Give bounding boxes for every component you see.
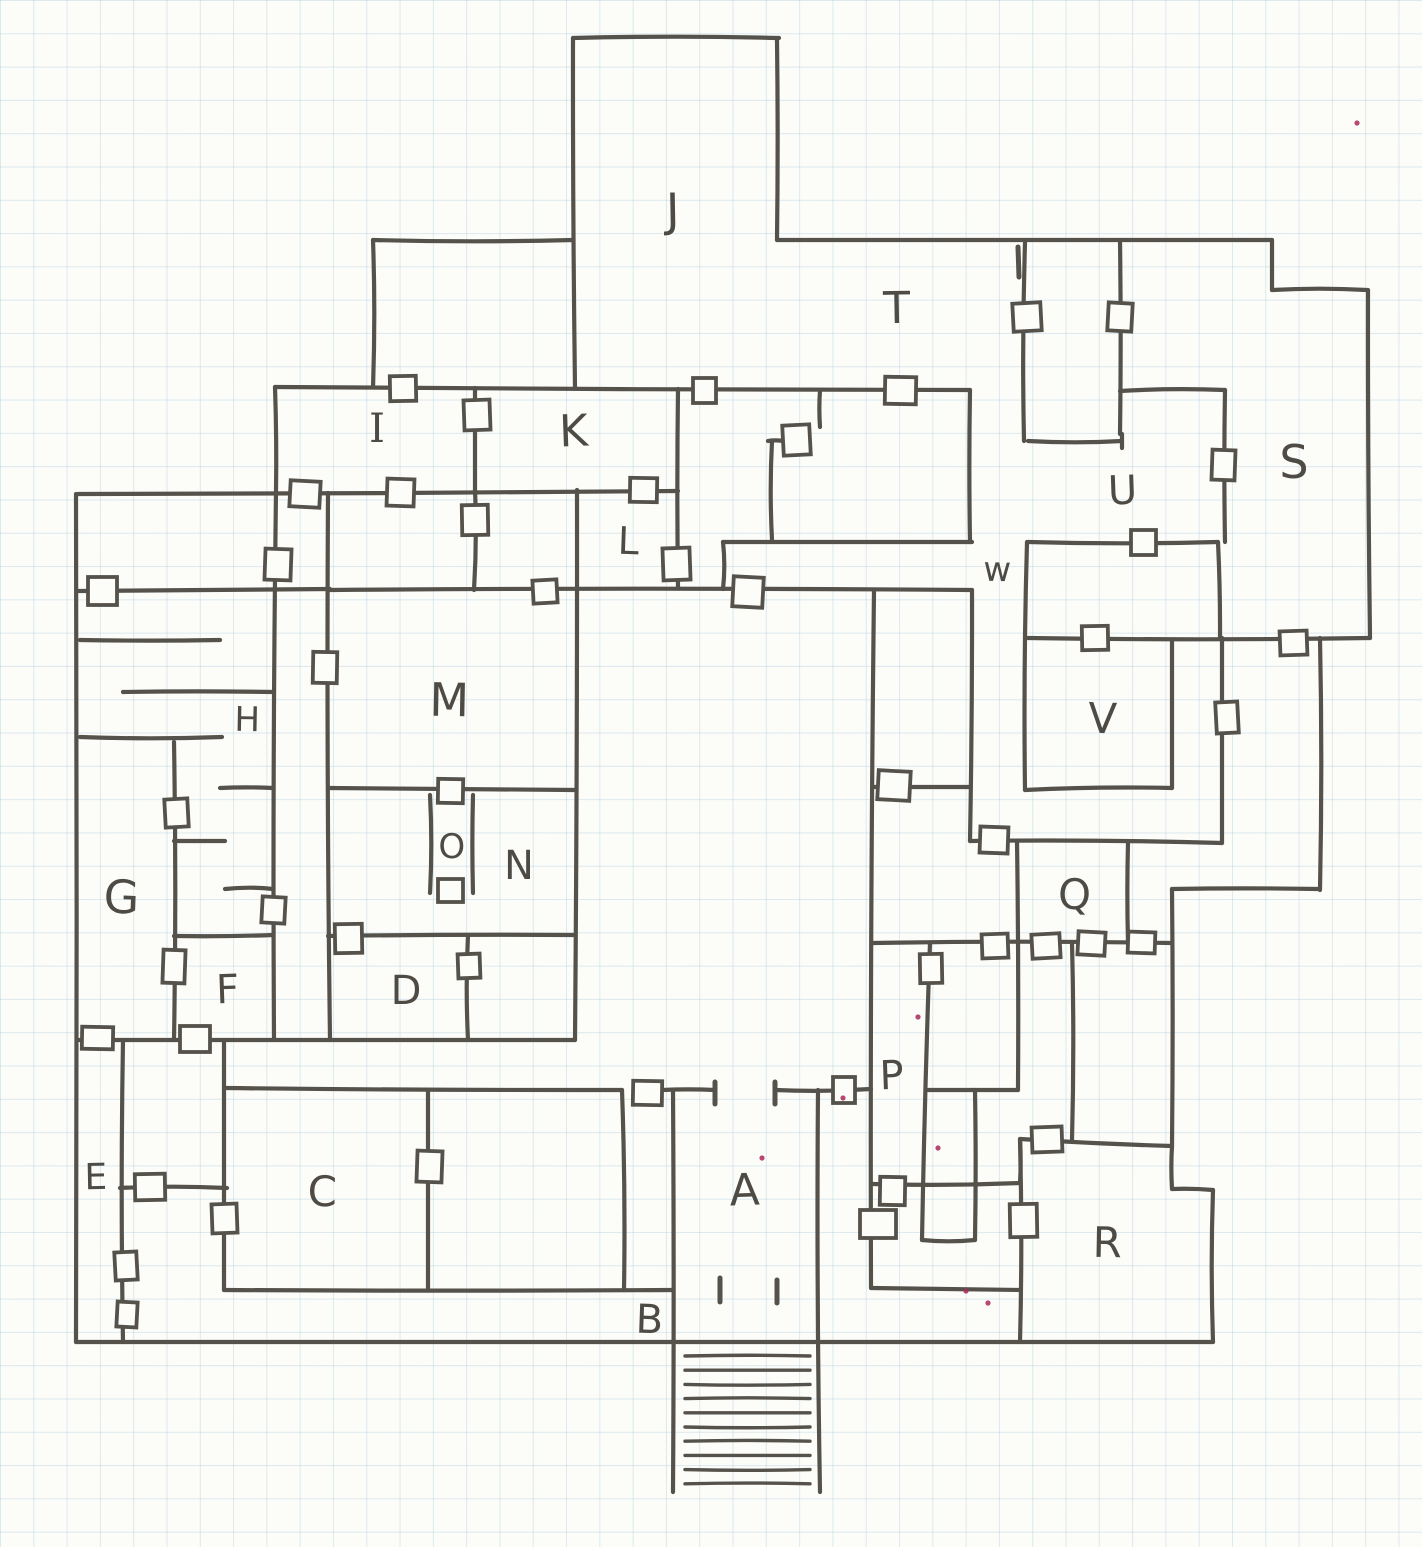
jambs-layer — [715, 247, 1019, 1303]
room-label-D: D — [391, 968, 422, 1014]
wall — [1172, 888, 1318, 889]
wall — [275, 387, 970, 390]
door-marker — [416, 1151, 442, 1183]
door-marker — [114, 1251, 137, 1280]
room-label-U: U — [1107, 468, 1138, 515]
walls-layer — [76, 37, 1370, 1492]
door-marker — [438, 779, 463, 803]
door-marker — [1077, 931, 1105, 955]
dungeon-map: ABCDEFGHIJKLMNOPQRSTUVw — [0, 0, 1422, 1547]
room-label-N: N — [504, 843, 534, 889]
wall — [970, 590, 972, 841]
wall — [430, 795, 431, 893]
door-marker — [438, 879, 463, 902]
wall — [1028, 441, 1122, 442]
wall — [224, 1290, 673, 1291]
door-marker — [1131, 530, 1156, 555]
wall — [78, 491, 678, 494]
door-marker — [1032, 1126, 1063, 1152]
wall — [1017, 841, 1018, 1090]
door-marker — [264, 549, 291, 581]
door-marker — [82, 1027, 113, 1050]
door-marker — [880, 1177, 905, 1205]
ink-speck — [1354, 120, 1359, 125]
door-marker — [782, 424, 811, 455]
door-marker — [180, 1026, 210, 1052]
door-marker — [462, 505, 489, 535]
door-marker — [732, 576, 764, 608]
wall — [1120, 389, 1225, 391]
wall — [80, 640, 220, 641]
wall — [373, 240, 573, 241]
door-marker — [877, 770, 910, 801]
wall — [1072, 943, 1073, 1140]
stair-tread — [685, 1398, 810, 1399]
wall — [122, 1040, 123, 1342]
wall — [1127, 843, 1128, 943]
stairs — [685, 1355, 810, 1484]
door-marker — [387, 479, 415, 507]
door-marker — [458, 954, 481, 979]
stair-tread — [685, 1440, 810, 1441]
door-marker — [116, 1301, 137, 1327]
wall — [1020, 1140, 1021, 1342]
wall — [1025, 788, 1172, 790]
room-label-C: C — [307, 1167, 337, 1217]
door-marker — [633, 1081, 662, 1106]
room-label-H: H — [234, 700, 260, 740]
room-label-F: F — [215, 967, 240, 1014]
door-marker — [289, 480, 320, 508]
stair-tread — [685, 1384, 810, 1385]
door-marker — [1012, 302, 1041, 331]
wall — [575, 490, 577, 1040]
door-marker — [982, 934, 1009, 959]
wall — [573, 38, 575, 388]
wall — [818, 1090, 820, 1492]
door-marker — [532, 579, 557, 603]
room-label-I: I — [369, 406, 385, 452]
stair-tread — [685, 1427, 810, 1428]
wall — [1172, 1189, 1213, 1190]
wall — [871, 1288, 1020, 1290]
ink-speck — [840, 1095, 845, 1100]
wall — [1025, 542, 1027, 790]
ink-speck — [915, 1014, 920, 1019]
wall — [1272, 289, 1367, 290]
room-label-A: A — [729, 1164, 761, 1216]
door-marker — [920, 954, 943, 983]
room-label-R: R — [1092, 1218, 1122, 1268]
door-marker — [164, 798, 188, 827]
room-label-L: L — [617, 519, 640, 564]
wall — [622, 1090, 624, 1290]
door-jamb — [1018, 247, 1019, 277]
door-marker — [390, 376, 416, 401]
ink-speck — [759, 1155, 764, 1160]
door-marker — [1031, 933, 1060, 958]
room-label-T: T — [882, 283, 911, 334]
door-marker — [135, 1174, 165, 1201]
wall — [969, 390, 970, 542]
wall — [76, 494, 77, 1342]
wall — [975, 1090, 976, 1240]
stair-tread — [685, 1355, 810, 1356]
wall — [225, 888, 273, 889]
wall — [467, 935, 468, 1040]
room-label-M: M — [429, 673, 470, 728]
wall — [771, 441, 772, 540]
wall — [1023, 243, 1025, 441]
wall — [1218, 542, 1220, 638]
door-marker — [1211, 450, 1235, 481]
room-label-B: B — [635, 1297, 664, 1344]
wall — [80, 737, 222, 738]
wall — [662, 1089, 715, 1090]
doors-layer — [82, 302, 1308, 1327]
door-marker — [980, 827, 1009, 854]
door-marker — [162, 950, 185, 984]
ink-speck — [985, 1300, 990, 1305]
room-label-G: G — [103, 869, 141, 924]
door-marker — [1128, 932, 1156, 954]
wall — [1320, 638, 1321, 890]
wall — [1172, 889, 1173, 1146]
room-label-J: J — [662, 183, 680, 237]
room-label-O: O — [438, 827, 465, 867]
wall — [174, 935, 273, 936]
graph-paper: ABCDEFGHIJKLMNOPQRSTUVw — [0, 0, 1422, 1547]
door-marker — [860, 1210, 896, 1238]
room-label-S: S — [1279, 435, 1308, 489]
door-marker — [88, 577, 117, 605]
door-marker — [693, 378, 716, 403]
wall — [220, 787, 273, 788]
wall — [819, 390, 820, 427]
door-marker — [662, 548, 690, 581]
wall — [224, 1088, 622, 1090]
door-marker — [313, 652, 338, 683]
wall — [1212, 1190, 1213, 1342]
door-marker — [335, 924, 363, 953]
ink-speck — [963, 1288, 968, 1293]
wall — [1368, 290, 1370, 638]
door-marker — [1010, 1204, 1038, 1237]
wall — [1171, 1146, 1172, 1189]
door-marker — [1082, 626, 1108, 650]
door-marker — [1280, 631, 1308, 656]
wall — [174, 742, 175, 1040]
wall — [922, 1240, 975, 1241]
room-label-E: E — [84, 1157, 107, 1198]
room-labels: ABCDEFGHIJKLMNOPQRSTUVw — [84, 183, 1309, 1344]
ink-speck — [935, 1145, 940, 1150]
wall — [777, 40, 778, 240]
wall — [373, 240, 374, 387]
room-label-P: P — [879, 1053, 905, 1100]
door-marker — [463, 400, 490, 431]
door-marker — [630, 478, 657, 502]
wall — [275, 387, 276, 492]
room-label-K: K — [558, 405, 590, 457]
wall — [1028, 542, 1218, 543]
wall — [472, 795, 473, 893]
wall — [123, 691, 273, 692]
door-marker — [1107, 302, 1132, 331]
wall — [573, 37, 779, 38]
stair-tread — [685, 1470, 810, 1471]
room-label-W: w — [983, 550, 1012, 590]
door-marker — [261, 896, 285, 923]
wall — [723, 542, 724, 589]
door-marker — [212, 1204, 238, 1234]
wall — [673, 1090, 674, 1492]
wall — [328, 493, 330, 1040]
door-marker — [1215, 701, 1239, 733]
door-marker — [885, 377, 916, 405]
room-label-Q: Q — [1057, 869, 1092, 919]
wall — [328, 935, 575, 936]
stair-tread — [685, 1483, 810, 1484]
room-label-V: V — [1087, 694, 1118, 744]
wall — [1120, 240, 1121, 434]
